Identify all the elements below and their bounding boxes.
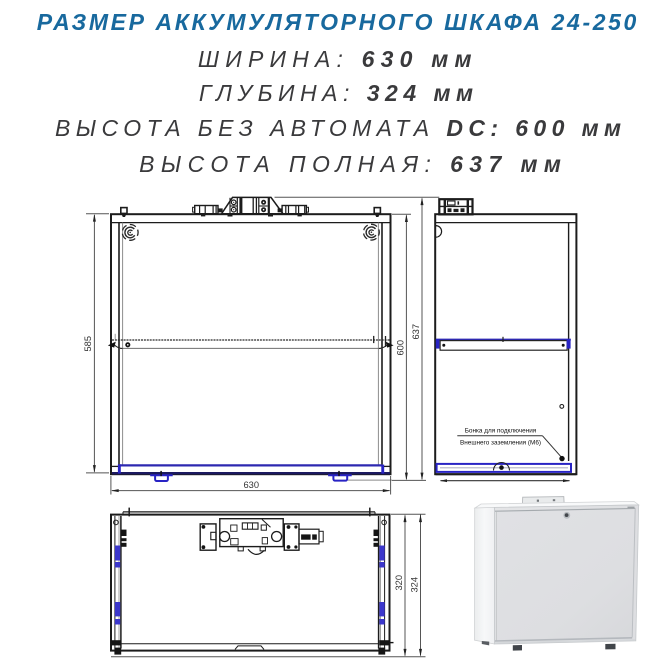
svg-text:Бонка для подключения: Бонка для подключения (465, 428, 537, 435)
svg-text:324: 324 (410, 577, 420, 593)
svg-text:637: 637 (411, 324, 421, 340)
svg-text:630: 630 (244, 480, 260, 490)
svg-text:320: 320 (394, 575, 404, 591)
svg-text:585: 585 (83, 336, 93, 352)
svg-text:600: 600 (395, 340, 405, 356)
svg-text:Внешнего заземления (М6): Внешнего заземления (М6) (460, 439, 541, 446)
